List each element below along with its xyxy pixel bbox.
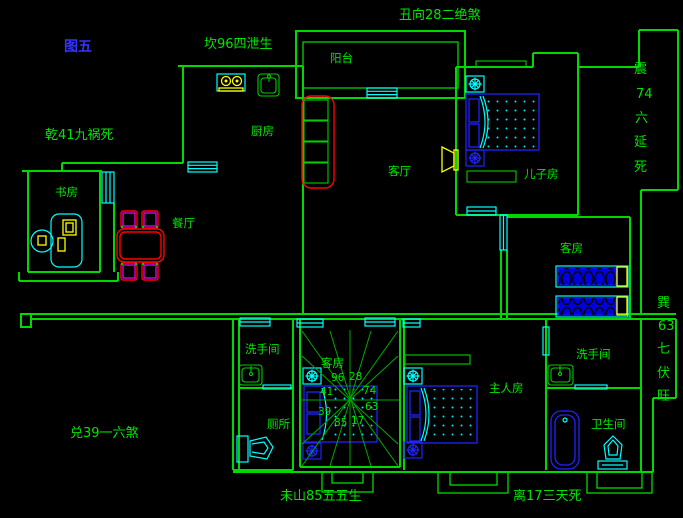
window-icon [467, 207, 496, 215]
compass-lines [302, 330, 399, 467]
annotation-west: 兑39一六煞 [70, 426, 139, 441]
window-icon [500, 215, 507, 250]
compass-number-e2: 63 [365, 401, 378, 413]
window-icon [367, 88, 397, 98]
walls-right-outline [578, 30, 678, 472]
compass-number-s2: 17 [351, 415, 364, 427]
room-label-toilet: 厕所 [267, 417, 290, 431]
chair-icon [121, 263, 137, 280]
kitchen-sink-icon [258, 74, 279, 96]
floor-plan-canvas: 图五 坎96四泄生 丑向28二绝煞 乾41九祸死 兑39一六煞 未山85五五生 … [0, 0, 683, 518]
annotation-north: 坎96四泄生 [204, 37, 273, 52]
toilet-icon [237, 436, 273, 462]
nightstand-icon [466, 150, 484, 166]
compass-number-w2: 39 [318, 406, 331, 418]
room-label-balcony: 阳台 [330, 51, 353, 65]
single-bed-icon [556, 296, 628, 317]
master-bedroom-furniture [404, 355, 477, 458]
room-label-guest-room-center: 客房 [321, 356, 344, 370]
chair-icon [121, 211, 137, 228]
chair-icon [142, 211, 158, 228]
office-chair-icon [31, 230, 53, 252]
annotation-northwest: 乾41九祸死 [45, 128, 114, 143]
desk-icon [51, 214, 82, 267]
window-icon [188, 162, 217, 172]
svg-text:巽: 巽 [657, 296, 670, 311]
room-label-master-bedroom: 主人房 [489, 381, 524, 395]
single-bed-icon [556, 266, 628, 287]
svg-text:死: 死 [634, 160, 647, 175]
door-icon [102, 172, 114, 203]
guest-room-upper-furniture [556, 266, 628, 317]
compass-number-s1: 85 [334, 417, 347, 429]
computer-icon [58, 220, 76, 251]
sink-icon [548, 365, 573, 385]
svg-text:六: 六 [635, 111, 648, 126]
compass-number-n2: 28 [349, 371, 362, 383]
annotation-southwest: 未山85五五生 [280, 489, 362, 504]
sink-icon [239, 365, 262, 385]
bathtub-icon [551, 411, 579, 469]
stove-icon [217, 74, 245, 91]
compass-number-n1: 96 [331, 372, 345, 384]
wardrobe-icon [405, 355, 470, 364]
svg-text:震: 震 [634, 62, 647, 77]
sons-room-furniture [466, 61, 539, 182]
svg-text:63: 63 [658, 319, 675, 334]
chair-icon [142, 263, 158, 280]
svg-text:74: 74 [636, 87, 653, 102]
nightstand-icon [404, 368, 422, 384]
nightstand-icon [303, 443, 321, 459]
annotation-southeast: 巽 63 七 伏 旺 [657, 296, 675, 404]
room-label-kitchen: 厨房 [251, 124, 274, 138]
svg-text:伏: 伏 [657, 366, 670, 381]
dining-chairs [121, 211, 158, 280]
nightstand-icon [466, 76, 484, 92]
entry-steps [322, 472, 652, 493]
room-label-bathroom: 卫生间 [591, 417, 626, 431]
double-bed-icon [466, 94, 539, 150]
compass-number-e1: 74 [363, 385, 377, 397]
figure-label: 图五 [64, 39, 92, 55]
dining-table-icon [117, 229, 164, 262]
toilet-icon [598, 436, 627, 469]
nightstand-icon [404, 442, 422, 458]
floor-plan-drawing: 图五 坎96四泄生 丑向28二绝煞 乾41九祸死 兑39一六煞 未山85五五生 … [0, 0, 683, 518]
annotation-northeast: 丑向28二绝煞 [399, 7, 481, 23]
window-icon [403, 319, 420, 327]
compass-number-w1: 41 [320, 386, 333, 398]
double-bed-icon [407, 386, 477, 443]
walls-corridor [21, 314, 676, 327]
room-label-washroom-left: 洗手间 [245, 342, 280, 356]
room-label-washroom-right: 洗手间 [576, 347, 611, 361]
svg-text:七: 七 [657, 342, 670, 357]
sofa-icon [302, 96, 334, 188]
cabinet-icon [467, 171, 516, 182]
room-label-dining-room: 餐厅 [172, 216, 195, 230]
svg-text:延: 延 [634, 135, 647, 150]
annotation-east: 震 74 六 延 死 [634, 62, 653, 175]
svg-text:旺: 旺 [657, 389, 670, 404]
room-label-sons-room: 儿子房 [524, 167, 559, 181]
room-label-study: 书房 [55, 185, 78, 199]
room-label-living-room: 客厅 [388, 164, 411, 178]
room-label-guest-room-upper: 客房 [560, 241, 583, 255]
annotation-south: 离17三天死 [513, 488, 582, 504]
